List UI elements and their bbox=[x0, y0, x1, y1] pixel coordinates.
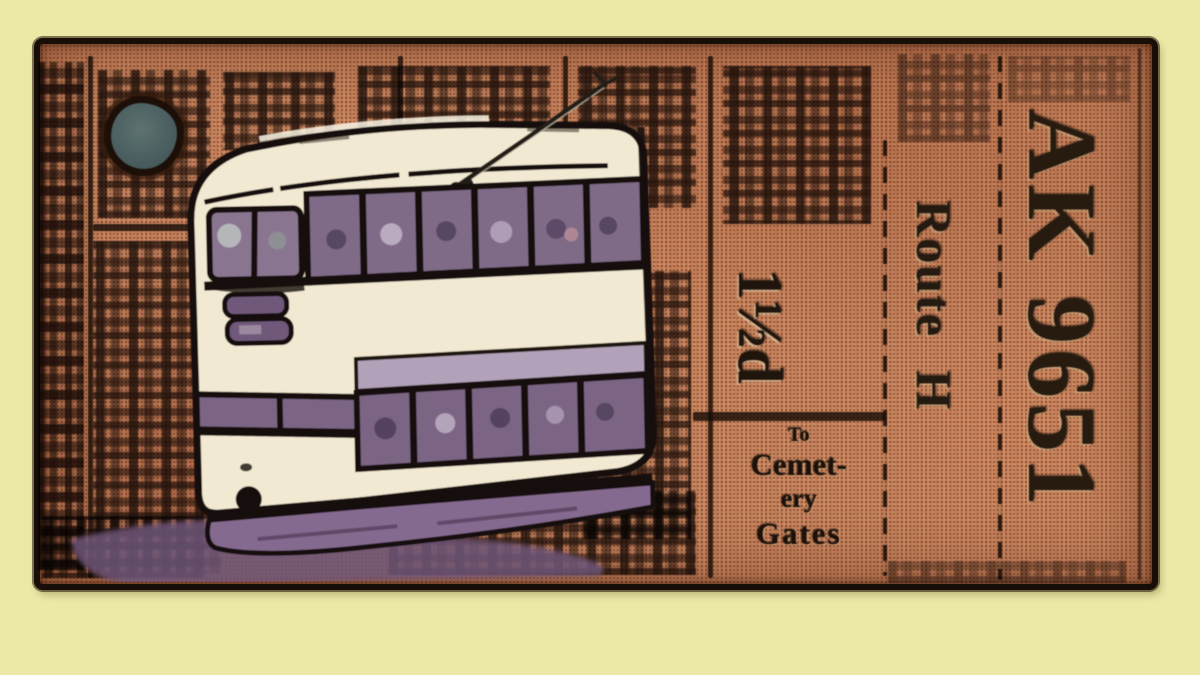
illegible-print-block bbox=[888, 561, 1126, 583]
destination-line: Cemet- bbox=[713, 447, 885, 483]
artwork-canvas: AK 9651 Route H 1½d To Cemet- ery Gates bbox=[0, 0, 1200, 675]
ticket-fare: 1½d bbox=[715, 246, 805, 406]
ruled-line bbox=[1138, 48, 1141, 580]
ticket-destination: To Cemet- ery Gates bbox=[713, 423, 885, 578]
illegible-print-block bbox=[898, 54, 990, 142]
illegible-print-block bbox=[723, 66, 871, 224]
ruled-line bbox=[693, 412, 885, 421]
route-indicator-boxes bbox=[224, 293, 291, 343]
destination-line: To bbox=[713, 423, 885, 447]
destination-line: Gates bbox=[713, 514, 885, 554]
ticket-serial-number: AK 9651 bbox=[1001, 60, 1121, 560]
tram-illustration bbox=[54, 66, 710, 582]
destination-line: ery bbox=[713, 483, 885, 514]
ticket-route: Route H bbox=[902, 151, 966, 461]
